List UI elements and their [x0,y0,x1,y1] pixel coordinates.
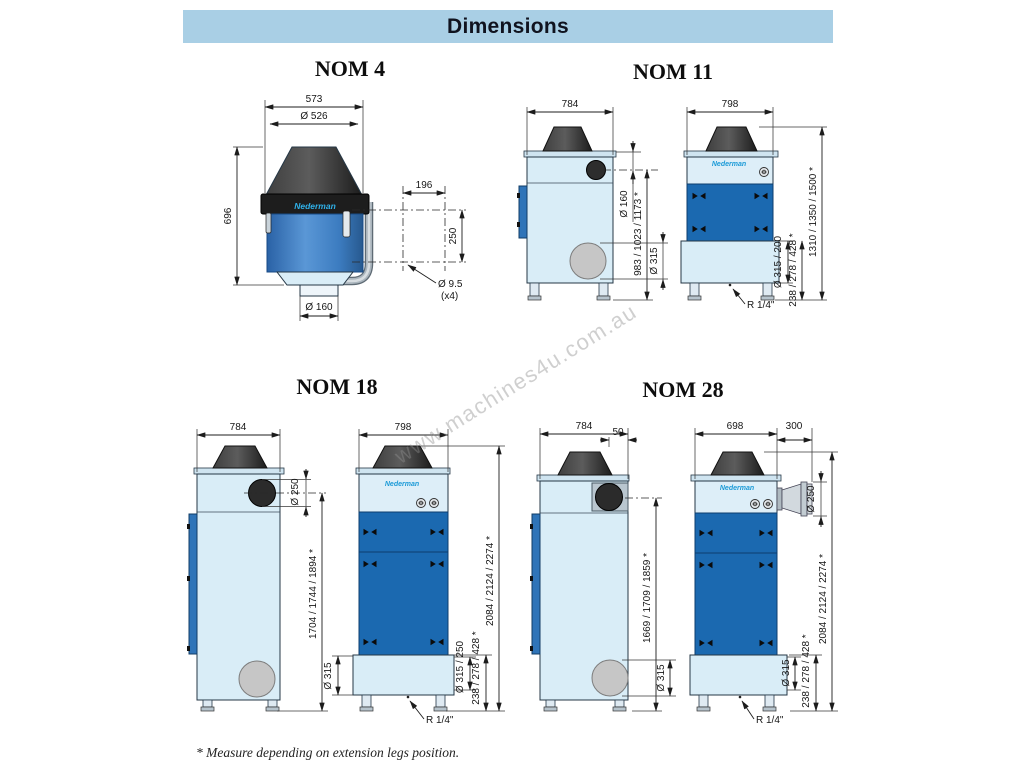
clip [343,211,350,237]
dim-label: Ø 160 [305,302,333,313]
brand-logo: Nederman [385,481,419,488]
access-door [519,186,527,238]
lid [691,475,781,481]
dim-label: 798 [722,99,739,110]
nom28-drawing: Nederman 784 [530,421,838,726]
dim-label: 983 / 1023 / 1173 * [633,192,644,276]
dim-label: Ø 315 [656,664,667,692]
exhaust-cone [711,452,764,475]
dim-label: Ø 315 [781,659,792,687]
lid [524,151,616,157]
lid [356,468,450,474]
exhaust-cone [373,446,432,468]
drain-point [739,696,742,699]
clip [266,213,271,233]
inlet-port [596,484,623,511]
control-knob [430,499,439,508]
dim-label: 784 [562,99,579,110]
control-knob [417,499,426,508]
exhaust-cone [543,127,592,151]
dim-label: 238 / 278 / 428 * [801,634,812,708]
dim-label: R 1/4" [756,715,784,726]
dim-label: R 1/4" [747,300,775,311]
dim-label: Ø 315 [323,662,334,690]
exhaust-cone [706,127,757,151]
dim-label: (x4) [441,291,458,302]
leg [436,695,445,707]
dim-label: 2084 / 2124 / 2274 * [485,536,496,626]
outlet-duct [782,484,801,514]
dim-label: 300 [786,421,803,432]
dim-label: 784 [576,421,593,432]
control-knob [764,500,773,509]
dim-label: Ø 250 [290,478,301,506]
leg [546,700,555,707]
leg [203,700,212,707]
dim-label: 196 [416,180,433,191]
footnote: * Measure depending on extension legs po… [196,745,459,761]
dim-label: Ø 315 / 200 [773,235,784,288]
nom18-drawing: Nederman 784 [187,422,505,726]
bottom-flange [277,272,353,285]
outlet-port [300,285,338,296]
filter-door-lower [695,553,777,655]
access-door [189,514,197,654]
nom4-drawing: Nederman 573 Ø 526 696 196 250 Ø 9.5 [223,94,466,321]
dim-label: 250 [448,227,459,244]
inlet-port [587,161,606,180]
dim-label: Ø 315 [649,247,660,275]
drain-point [729,284,732,287]
dim-label: R 1/4" [426,715,454,726]
outlet-duct [777,488,782,510]
control-knob [760,168,769,177]
access-door [532,514,540,654]
leg [362,695,371,707]
dim-label: Ø 250 [806,485,817,513]
lid [684,151,778,157]
leg [530,283,539,296]
leg [763,283,772,296]
base-section [353,655,454,695]
dim-label: Ø 160 [619,190,630,218]
leg [690,283,699,296]
drain-port [239,661,275,697]
brand-logo: Nederman [712,161,746,168]
technical-drawing-canvas: Nederman 573 Ø 526 696 196 250 Ø 9.5 [0,0,1024,768]
base-section [681,241,779,283]
control-knob [751,500,760,509]
dim-label: Ø 9.5 [438,279,463,290]
leg [699,695,708,707]
dim-label: 784 [230,422,247,433]
leg [599,283,608,296]
lid [537,475,629,481]
dim-label: 1704 / 1744 / 1894 * [308,549,319,639]
exhaust-cone [558,452,612,475]
drain-port [570,243,606,279]
dim-label: 2084 / 2124 / 2274 * [818,554,829,644]
dim-label: 573 [306,94,323,105]
dim-label: 696 [223,207,234,224]
dim-label: 238 / 278 / 428 * [788,233,799,307]
brand-logo: Nederman [720,485,754,492]
dim-label: 238 / 278 / 428 * [471,631,482,705]
dim-label: Ø 526 [300,111,328,122]
dim-label: Ø 315 / 250 [455,640,466,693]
leg [268,700,277,707]
drain-port [592,660,628,696]
dim-label: 698 [727,421,744,432]
leg [615,700,624,707]
lid [194,468,284,474]
base-section [690,655,787,695]
dimensions-drawing-page: Dimensions NOM 4 NOM 11 NOM 18 NOM 28 [0,0,1024,768]
nom11-drawing: Nederman 784 Ø 160 [517,99,827,311]
exhaust-cone [213,446,267,468]
drain-point [407,696,410,699]
exhaust-cone [266,147,362,195]
dim-label: 798 [395,422,412,433]
leg [765,695,774,707]
filter-door [687,184,773,241]
dim-label: 50 [612,427,624,438]
filter-door-lower [359,552,448,655]
brand-logo: Nederman [294,201,336,211]
dim-label: 1310 / 1350 / 1500 * [808,167,819,257]
dim-label: 1669 / 1709 / 1859 * [642,553,653,643]
